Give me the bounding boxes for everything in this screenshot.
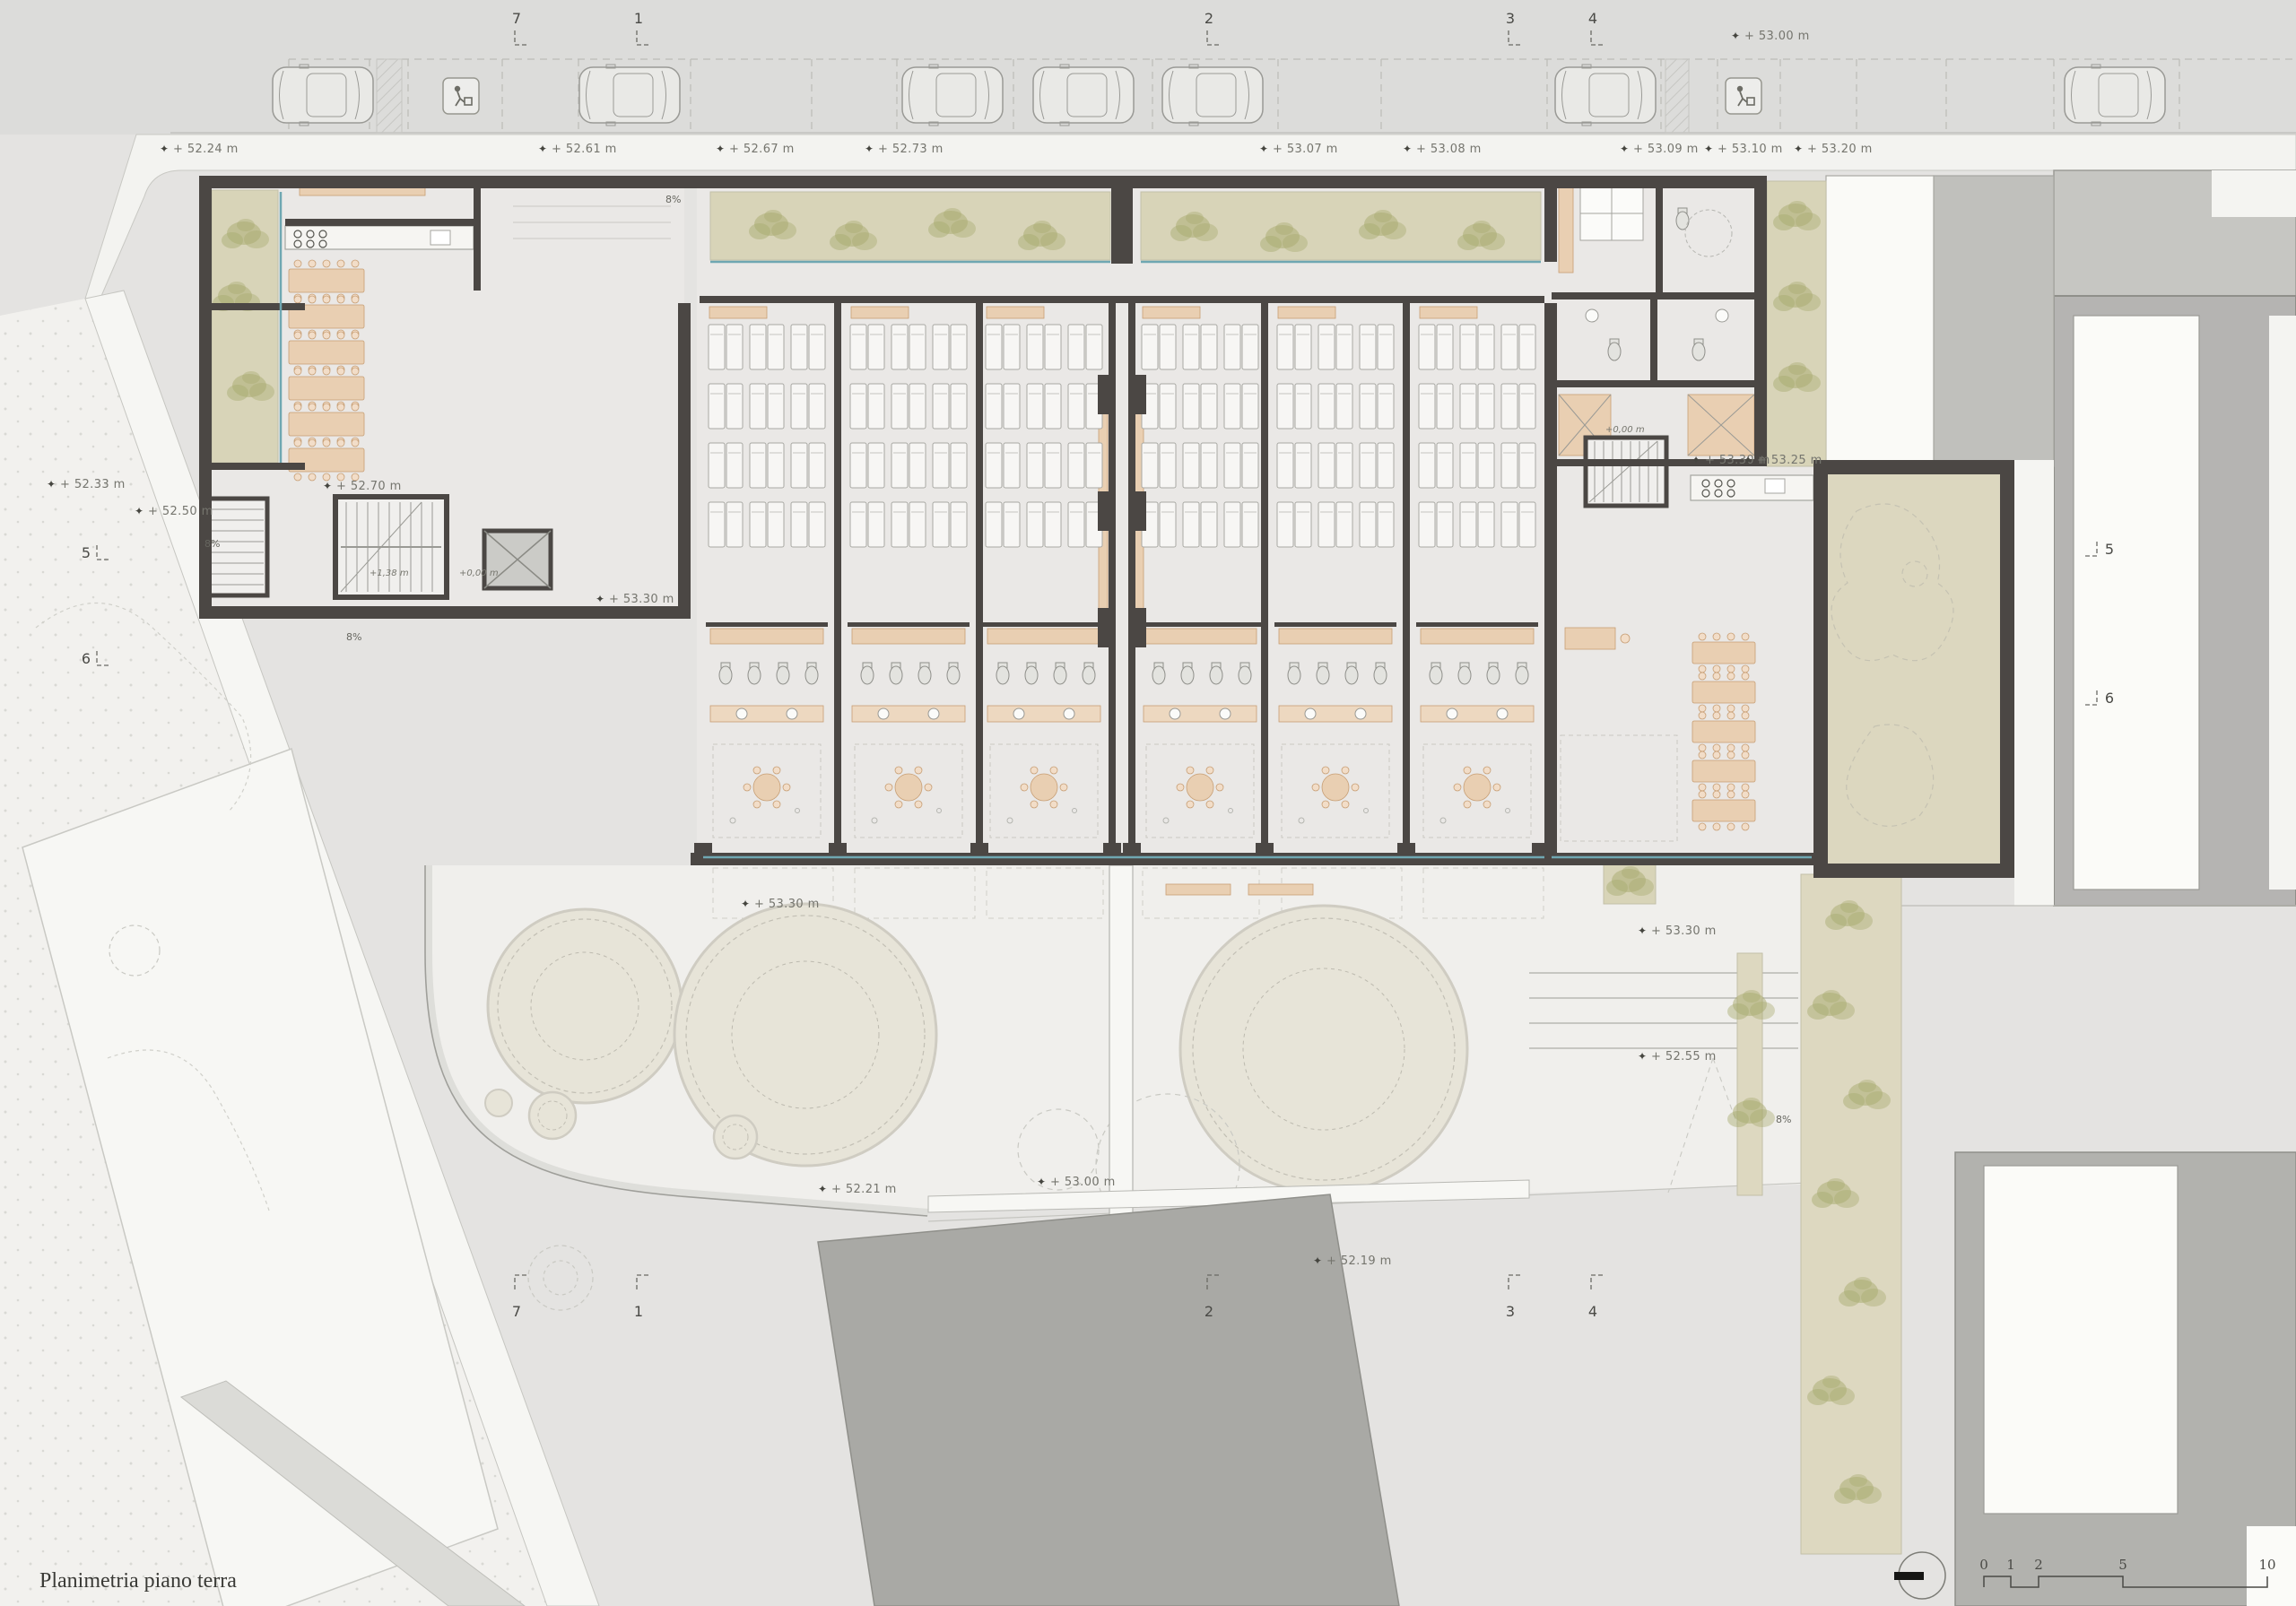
planter-pot-small	[485, 1089, 512, 1116]
elevation-label: + 53.30 m	[1651, 925, 1717, 938]
stair-level-label: +1,38 m	[370, 569, 409, 578]
level-icon: ✦	[1731, 30, 1740, 42]
desk-chair	[1621, 634, 1630, 643]
level-icon: ✦	[47, 478, 56, 490]
grid-marker-top-2: 2	[1205, 10, 1213, 27]
elevation-label: + 52.24 m	[173, 143, 239, 156]
level-icon: ✦	[1259, 143, 1268, 155]
cabinet	[1559, 187, 1573, 273]
level-icon: ✦	[865, 143, 874, 155]
planter-pot	[529, 1092, 576, 1139]
parked-car	[1555, 65, 1656, 126]
level-icon: ✦	[716, 143, 725, 155]
planting-strip	[1737, 953, 1762, 1195]
parked-car	[1162, 65, 1263, 126]
walled-garden	[1828, 474, 2000, 864]
sink	[1716, 309, 1728, 322]
level-icon: ✦	[1638, 1050, 1647, 1063]
bench	[1166, 884, 1231, 895]
drawing-title: Planimetria piano terra	[39, 1569, 237, 1593]
elevation-label: + 53.10 m	[1718, 143, 1783, 156]
parked-car	[273, 65, 373, 126]
parked-car	[902, 65, 1003, 126]
level-icon: ✦	[1692, 454, 1700, 466]
desk	[1565, 628, 1615, 649]
grid-marker-top-1: 1	[634, 10, 643, 27]
stairs-left	[335, 497, 447, 597]
dining-table	[289, 332, 364, 373]
floor-right-hall	[1551, 466, 1820, 859]
elevation-label: + 52.73 m	[878, 143, 944, 156]
level-icon: ✦	[1037, 1176, 1046, 1188]
level-icon: ✦	[538, 143, 547, 155]
stairs-right	[1586, 438, 1666, 506]
ramp-label: 8%	[204, 538, 220, 550]
elevation-label: + 52.55 m	[1651, 1050, 1717, 1063]
porter-sign-icon	[443, 78, 479, 114]
elevation-label: + 53.00 m	[1744, 30, 1810, 43]
stair-level-label: +0,00 m	[1605, 425, 1645, 435]
stair-level-label: +0,00 m	[459, 569, 499, 578]
elevation-label: + 52.70 m	[336, 480, 402, 493]
level-icon: ✦	[160, 143, 169, 155]
stairwell-2	[1586, 438, 1666, 506]
ramp-label: 8%	[1776, 1114, 1791, 1125]
sink	[1586, 309, 1598, 322]
scale-tick: 5	[2118, 1557, 2127, 1573]
elevation-label: + 52.61 m	[552, 143, 617, 156]
toilet	[1692, 339, 1705, 360]
grid-marker-right-5: 5	[2105, 541, 2114, 558]
floor-plan-sheet: ✦+ 53.00 m ✦+ 52.24 m ✦+ 52.61 m ✦+ 52.6…	[0, 0, 2296, 1606]
no-parking-hatch	[377, 59, 402, 133]
grid-marker-top-3: 3	[1506, 10, 1515, 27]
level-icon: ✦	[596, 593, 604, 605]
grid-marker-bottom-1: 1	[634, 1303, 643, 1320]
bench	[1248, 884, 1313, 895]
dining-table	[289, 296, 364, 337]
level-icon: ✦	[1638, 925, 1647, 937]
kitchen-sink-right	[1765, 479, 1785, 493]
elevation-label: + 52.50 m	[148, 505, 213, 518]
no-parking-hatch-2	[1665, 59, 1689, 133]
neighbor-court-notch	[2212, 170, 2296, 217]
dining-table	[289, 368, 364, 409]
ramp-label: 8%	[346, 631, 361, 643]
level-icon: ✦	[1744, 454, 1752, 466]
dining-table	[289, 260, 364, 301]
level-icon: ✦	[1620, 143, 1629, 155]
elevation-label: + 52.21 m	[831, 1183, 897, 1196]
porter-sign-icon	[1726, 78, 1761, 114]
level-icon: ✦	[741, 898, 750, 910]
grid-marker-right-6: 6	[2105, 690, 2114, 707]
neighbor-forecourt	[1826, 176, 1934, 466]
elevation-label: + 53.00 m	[1050, 1176, 1116, 1189]
grid-marker-top-7: 7	[512, 10, 521, 27]
grid-marker-top-4: 4	[1588, 10, 1597, 27]
elevation-label: + 52.19 m	[1326, 1254, 1392, 1268]
elevation-label: + 53.25 m	[1757, 454, 1822, 467]
level-icon: ✦	[135, 505, 143, 517]
accessible-toilet	[1676, 208, 1689, 230]
grid-marker-left-6: 6	[82, 650, 91, 667]
grid-marker-bottom-7: 7	[512, 1303, 521, 1320]
neighbor-edge-strip	[2269, 316, 2296, 890]
planting-bed	[1801, 874, 1901, 1554]
scale-tick: 2	[2034, 1557, 2043, 1573]
level-icon: ✦	[1704, 143, 1713, 155]
scale-tick: 0	[1979, 1557, 1988, 1573]
level-icon: ✦	[1794, 143, 1803, 155]
grid-marker-bottom-2: 2	[1205, 1303, 1213, 1320]
neighbor-side-strip	[2014, 460, 2054, 906]
kitchen-sink-left	[430, 230, 450, 245]
neighbor-mid-block	[1934, 176, 2054, 466]
grid-marker-bottom-4: 4	[1588, 1303, 1597, 1320]
dining-table	[289, 439, 364, 481]
north-needle	[1894, 1572, 1924, 1580]
scale-tick: 10	[2258, 1557, 2275, 1573]
neighbor-courtyard-2	[1984, 1166, 2178, 1514]
elevation-label: + 53.09 m	[1633, 143, 1699, 156]
elevation-label: + 52.33 m	[60, 478, 126, 491]
mound-large-right	[1180, 906, 1467, 1193]
planter-pot	[714, 1116, 757, 1159]
dining-table	[289, 404, 364, 445]
level-icon: ✦	[818, 1183, 827, 1195]
elevation-label: + 52.67 m	[729, 143, 795, 156]
scale-tick: 1	[2006, 1557, 2015, 1573]
neighbor-courtyard	[2074, 316, 2199, 890]
toilet	[1608, 339, 1621, 360]
elevation-label: + 53.20 m	[1807, 143, 1873, 156]
parked-car	[1033, 65, 1134, 126]
elevation-label: + 53.30 m	[609, 593, 674, 606]
mound-large-mid	[674, 904, 936, 1166]
neighbor-block-bottom	[818, 1194, 1399, 1606]
level-icon: ✦	[323, 480, 332, 492]
parked-car	[2065, 65, 2165, 126]
elevation-label: + 53.08 m	[1416, 143, 1482, 156]
mound-large-left	[488, 909, 682, 1103]
parked-car	[579, 65, 680, 126]
level-icon: ✦	[1313, 1254, 1322, 1267]
grid-marker-bottom-3: 3	[1506, 1303, 1515, 1320]
kitchen-counter-right	[1691, 475, 1813, 500]
elevation-label: + 53.07 m	[1273, 143, 1338, 156]
level-icon: ✦	[1403, 143, 1412, 155]
ramp-label: 8%	[665, 194, 681, 205]
elevation-label: + 53.30 m	[754, 898, 820, 911]
floor-plan-drawing: ✦+ 53.00 m ✦+ 52.24 m ✦+ 52.61 m ✦+ 52.6…	[0, 0, 2296, 1606]
grid-marker-left-5: 5	[82, 544, 91, 561]
